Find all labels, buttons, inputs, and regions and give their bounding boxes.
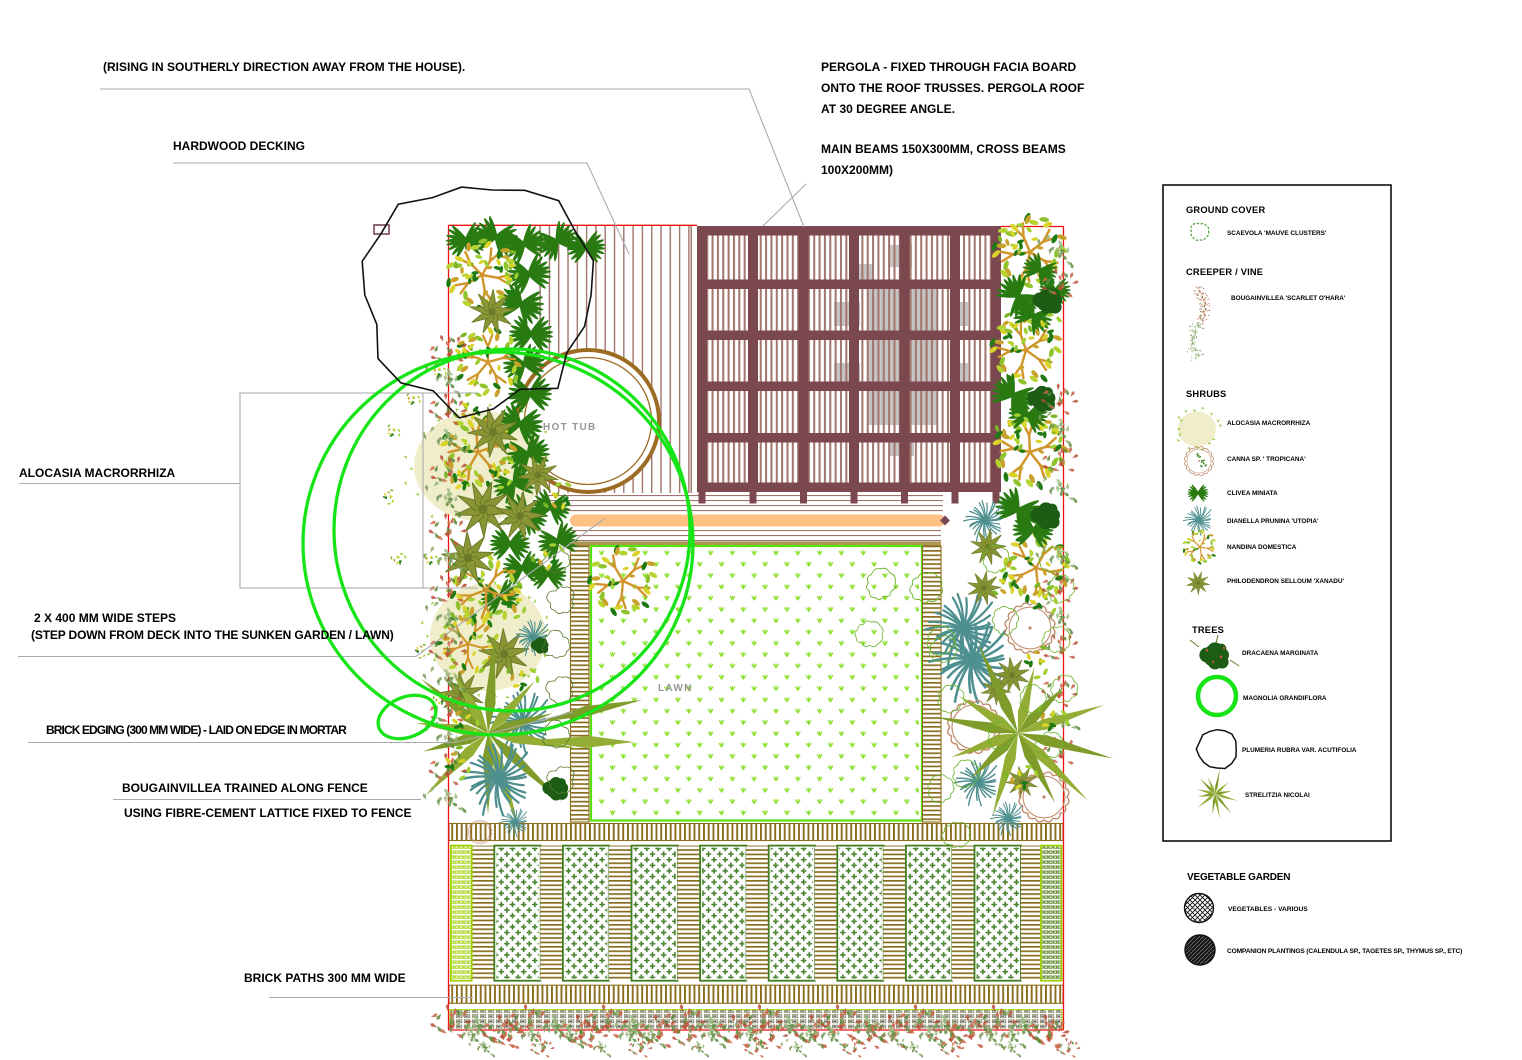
svg-text:USING FIBRE-CEMENT LATTICE FIX: USING FIBRE-CEMENT LATTICE FIXED TO FENC… xyxy=(124,806,412,820)
svg-text:BRICK EDGING (300 MM WIDE) - L: BRICK EDGING (300 MM WIDE) - LAID ON EDG… xyxy=(46,723,347,737)
svg-text:ALOCASIA MACRORRHIZA: ALOCASIA MACRORRHIZA xyxy=(19,466,176,480)
svg-text:TREES: TREES xyxy=(1192,625,1224,635)
svg-text:COMPANION PLANTINGS (CALENDULA: COMPANION PLANTINGS (CALENDULA SP., TAGE… xyxy=(1227,948,1462,955)
svg-text:HOT TUB: HOT TUB xyxy=(543,422,597,433)
svg-text:SCAEVOLA 'MAUVE CLUSTERS': SCAEVOLA 'MAUVE CLUSTERS' xyxy=(1227,230,1327,237)
svg-text:CLIVEA MINIATA: CLIVEA MINIATA xyxy=(1227,490,1278,497)
svg-text:GROUND COVER: GROUND COVER xyxy=(1186,205,1265,215)
svg-text:VEGETABLES - VARIOUS: VEGETABLES - VARIOUS xyxy=(1228,906,1308,913)
svg-text:AT 30 DEGREE ANGLE.: AT 30 DEGREE ANGLE. xyxy=(821,102,955,116)
svg-text:DRACAENA MARGINATA: DRACAENA MARGINATA xyxy=(1242,650,1319,657)
svg-text:NANDINA DOMESTICA: NANDINA DOMESTICA xyxy=(1227,544,1297,551)
svg-text:BOUGAINVILLEA TRAINED ALONG FE: BOUGAINVILLEA TRAINED ALONG FENCE xyxy=(122,781,368,795)
svg-text:(STEP DOWN FROM DECK INTO THE: (STEP DOWN FROM DECK INTO THE SUNKEN GAR… xyxy=(31,628,394,642)
svg-text:BOUGAINVILLEA 'SCARLET O'HARA': BOUGAINVILLEA 'SCARLET O'HARA' xyxy=(1231,295,1346,302)
svg-text:BRICK PATHS 300 MM WIDE: BRICK PATHS 300 MM WIDE xyxy=(244,971,406,985)
svg-text:PLUMERIA RUBRA VAR. ACUTIFOLIA: PLUMERIA RUBRA VAR. ACUTIFOLIA xyxy=(1242,747,1357,754)
svg-text:ALOCASIA MACRORRHIZA: ALOCASIA MACRORRHIZA xyxy=(1227,420,1311,427)
svg-text:CREEPER / VINE: CREEPER / VINE xyxy=(1186,267,1263,277)
svg-text:LAWN: LAWN xyxy=(658,683,693,694)
svg-text:CANNA SP. ' TROPICANA': CANNA SP. ' TROPICANA' xyxy=(1227,456,1306,463)
svg-text:SHRUBS: SHRUBS xyxy=(1186,389,1226,399)
svg-text:100X200MM): 100X200MM) xyxy=(821,163,893,177)
svg-text:STRELITZIA NICOLAI: STRELITZIA NICOLAI xyxy=(1245,792,1310,799)
svg-text:HARDWOOD DECKING: HARDWOOD DECKING xyxy=(173,139,305,153)
svg-text:PHILODENDRON SELLOUM 'XANADU': PHILODENDRON SELLOUM 'XANADU' xyxy=(1227,578,1344,585)
svg-text:ONTO THE ROOF TRUSSES. PERGOLA: ONTO THE ROOF TRUSSES. PERGOLA ROOF xyxy=(821,81,1084,95)
svg-text:PERGOLA - FIXED THROUGH FACIA: PERGOLA - FIXED THROUGH FACIA BOARD xyxy=(821,60,1076,74)
svg-text:(RISING IN SOUTHERLY DIRECTION: (RISING IN SOUTHERLY DIRECTION AWAY FROM… xyxy=(103,60,465,74)
svg-text:MAIN BEAMS 150X300MM, CROSS BE: MAIN BEAMS 150X300MM, CROSS BEAMS xyxy=(821,142,1066,156)
svg-text:2 X 400 MM WIDE STEPS: 2 X 400 MM WIDE STEPS xyxy=(34,611,176,625)
svg-text:VEGETABLE GARDEN: VEGETABLE GARDEN xyxy=(1187,872,1290,883)
svg-text:DIANELLA PRUNINA 'UTOPIA': DIANELLA PRUNINA 'UTOPIA' xyxy=(1227,518,1319,525)
svg-text:MAGNOLIA GRANDIFLORA: MAGNOLIA GRANDIFLORA xyxy=(1243,695,1327,702)
